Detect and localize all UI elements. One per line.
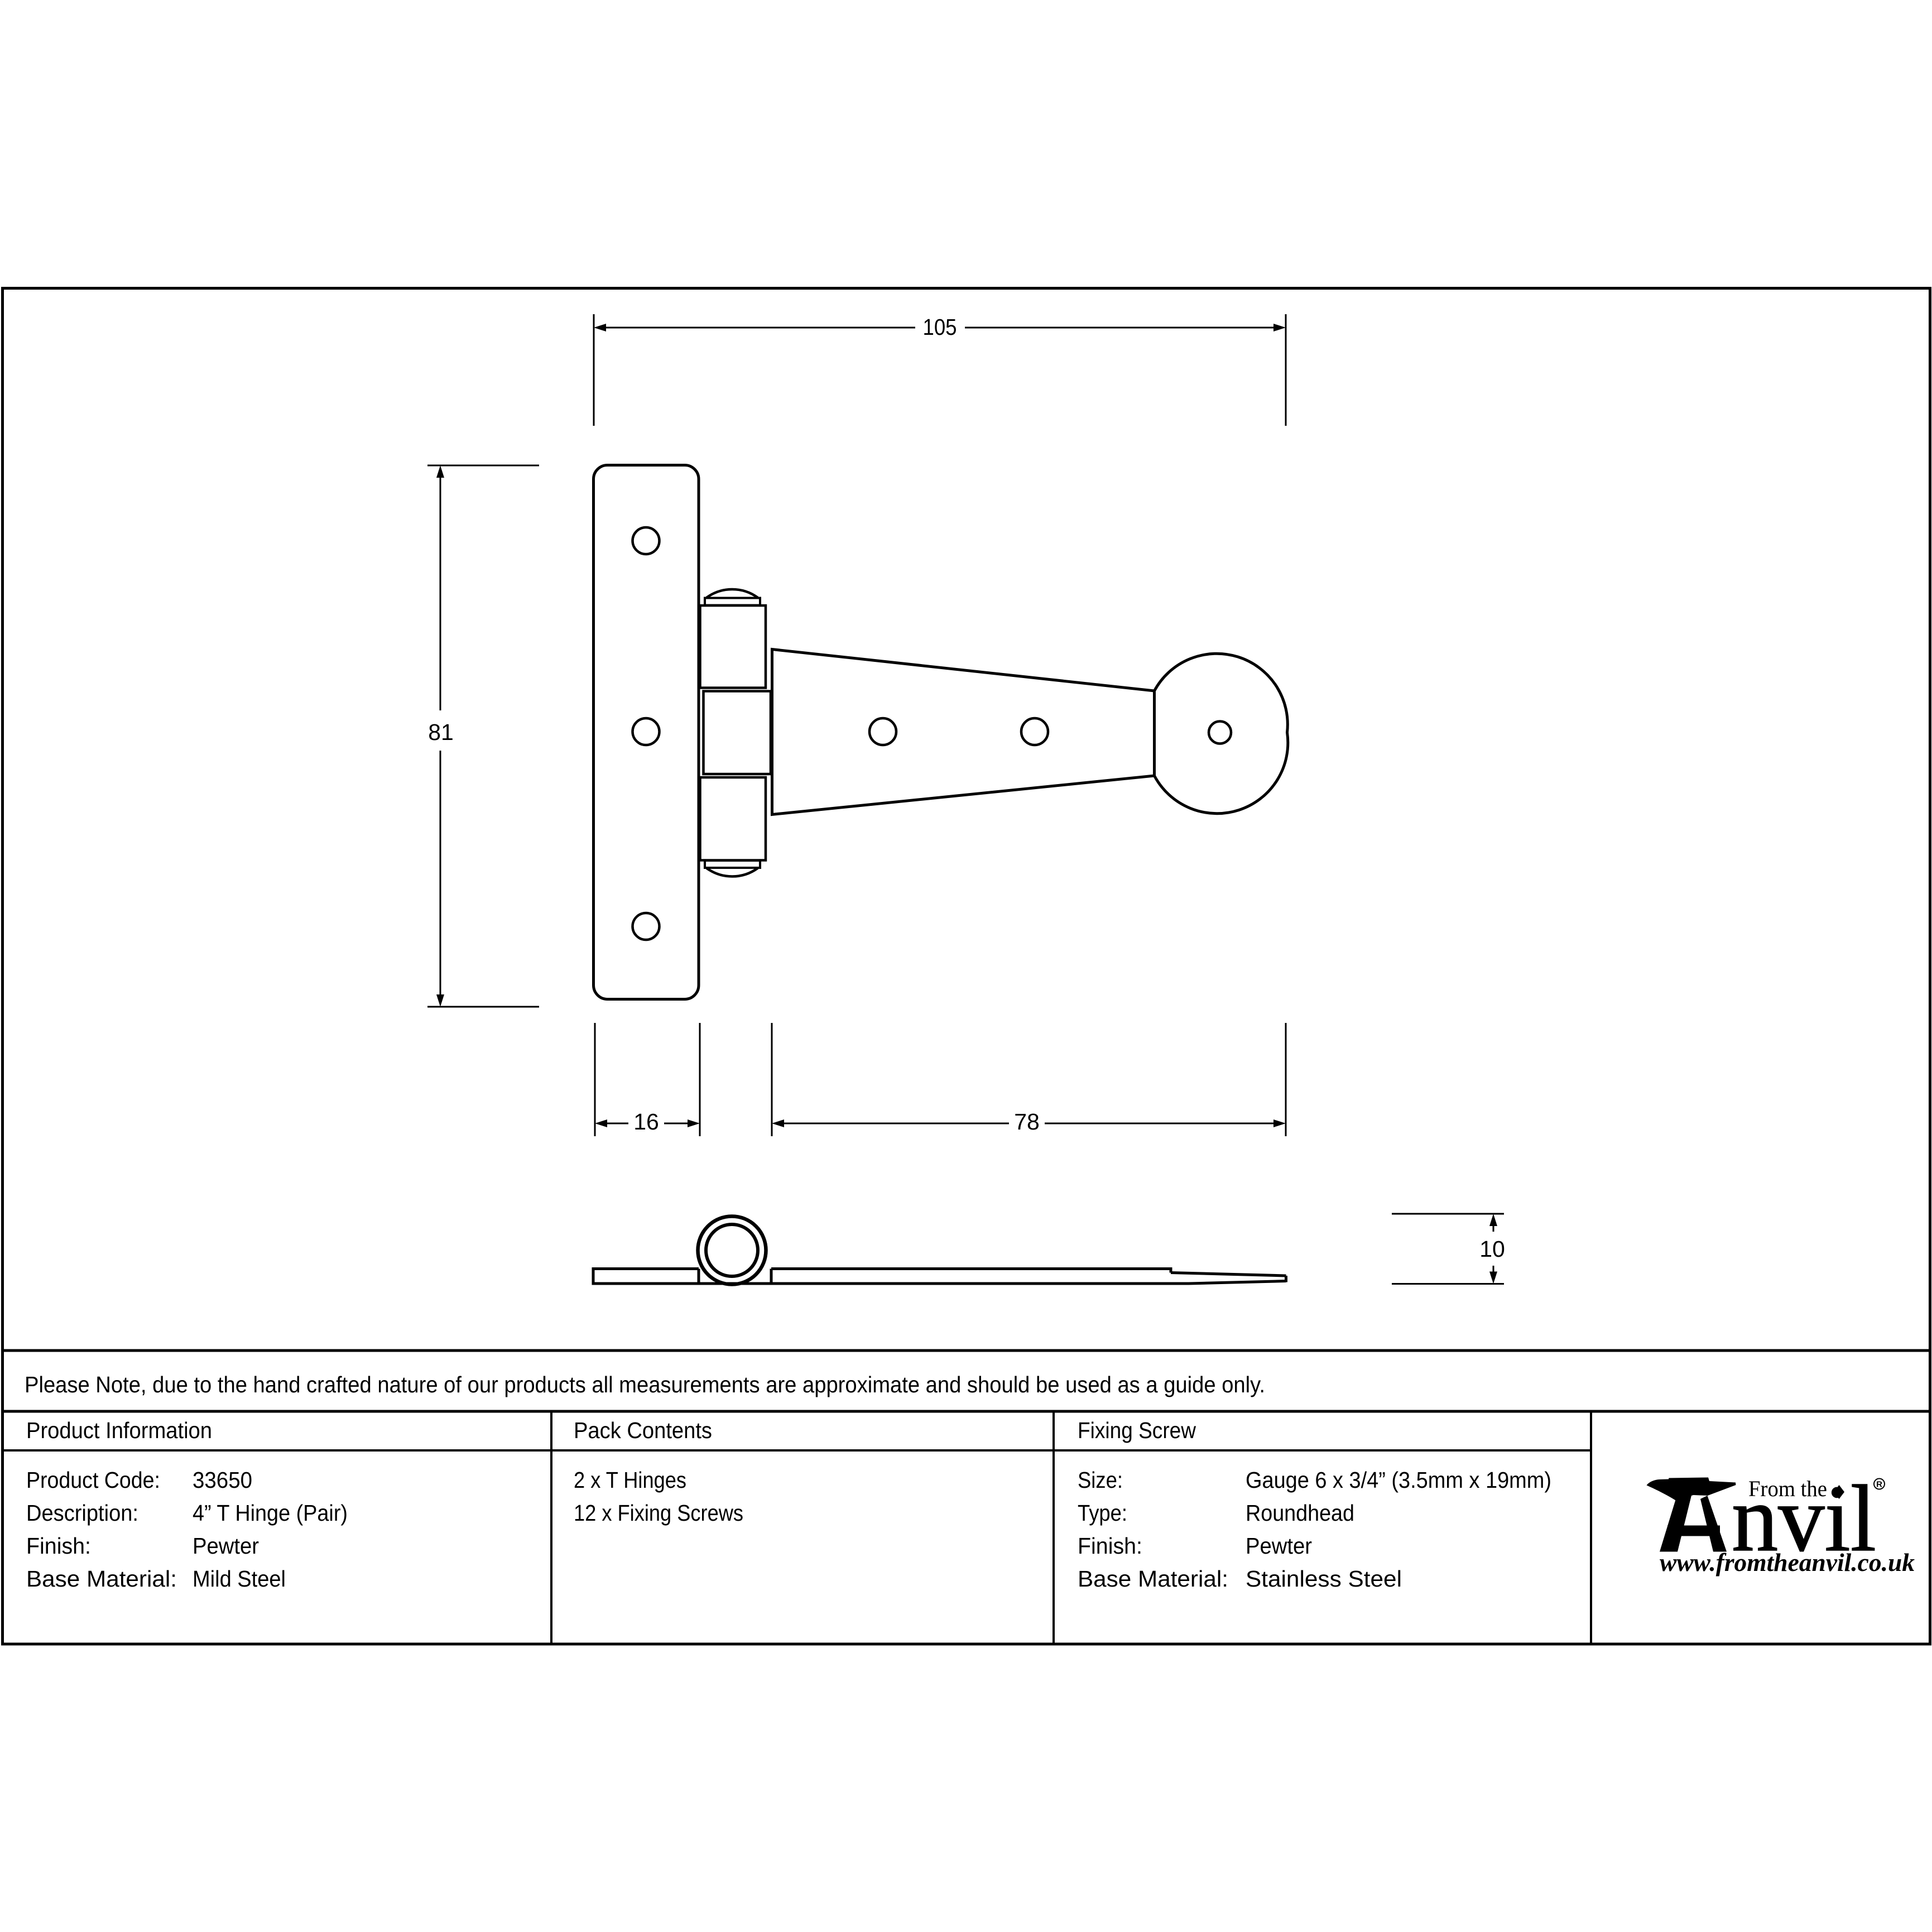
- svg-text:Product Information: Product Information: [26, 1417, 212, 1443]
- svg-text:Stainless Steel: Stainless Steel: [1246, 1566, 1402, 1592]
- svg-text:Size:: Size:: [1078, 1467, 1123, 1493]
- svg-text:4” T Hinge (Pair): 4” T Hinge (Pair): [193, 1500, 348, 1526]
- svg-text:2 x T Hinges: 2 x T Hinges: [574, 1467, 686, 1493]
- svg-text:81: 81: [428, 719, 454, 745]
- svg-text:Base Material:: Base Material:: [26, 1566, 177, 1592]
- svg-text:Fixing Screw: Fixing Screw: [1078, 1417, 1196, 1443]
- svg-text:78: 78: [1014, 1109, 1040, 1135]
- svg-text:Pack Contents: Pack Contents: [574, 1417, 712, 1443]
- svg-text:Pewter: Pewter: [1246, 1533, 1312, 1559]
- svg-text:Type:: Type:: [1078, 1500, 1127, 1526]
- svg-text:12 x Fixing Screws: 12 x Fixing Screws: [574, 1500, 743, 1526]
- svg-text:Product Code:: Product Code:: [26, 1467, 160, 1493]
- svg-text:Gauge 6 x 3/4” (3.5mm x 19mm): Gauge 6 x 3/4” (3.5mm x 19mm): [1246, 1467, 1551, 1493]
- svg-text:Please Note, due to the hand c: Please Note, due to the hand crafted nat…: [25, 1372, 1265, 1397]
- svg-text:www.fromtheanvil.co.uk: www.fromtheanvil.co.uk: [1660, 1548, 1915, 1577]
- svg-text:Pewter: Pewter: [193, 1533, 259, 1559]
- svg-text:Mild Steel: Mild Steel: [193, 1566, 286, 1592]
- svg-text:Finish:: Finish:: [26, 1533, 91, 1559]
- svg-text:Base Material:: Base Material:: [1078, 1566, 1228, 1592]
- svg-text:16: 16: [633, 1109, 659, 1135]
- svg-text:Finish:: Finish:: [1078, 1533, 1142, 1559]
- svg-text:Roundhead: Roundhead: [1246, 1500, 1354, 1526]
- svg-text:10: 10: [1479, 1236, 1505, 1262]
- svg-text:R: R: [1876, 1480, 1882, 1489]
- svg-text:33650: 33650: [193, 1467, 252, 1493]
- svg-text:Description:: Description:: [26, 1500, 138, 1526]
- svg-text:105: 105: [923, 314, 957, 340]
